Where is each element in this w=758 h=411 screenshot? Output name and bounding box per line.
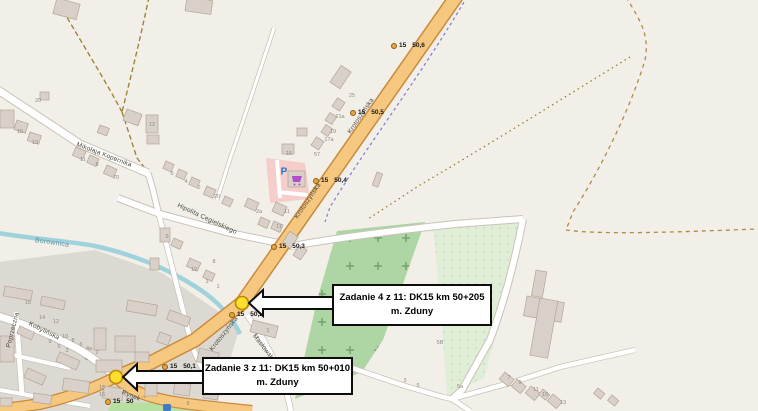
callout-arrow-4 xyxy=(249,290,333,316)
map-canvas[interactable]: Mikołaja KopernikaHipolita CegielskiegoK… xyxy=(0,0,758,411)
callout-task-4: Zadanie 4 z 11: DK15 km 50+205 m. Zduny xyxy=(332,284,492,326)
callout-task-4-line2: m. Zduny xyxy=(391,307,433,318)
task-marker-4 xyxy=(236,297,249,310)
callout-task-3-line1: Zadanie 3 z 11: DK15 km 50+010 xyxy=(205,364,350,375)
callout-task-3: Zadanie 3 z 11: DK15 km 50+010 m. Zduny xyxy=(202,357,353,395)
callout-task-3-line2: m. Zduny xyxy=(256,378,298,389)
callout-task-4-line1: Zadanie 4 z 11: DK15 km 50+205 xyxy=(340,293,485,304)
callout-arrow-3 xyxy=(123,364,203,390)
task-marker-3 xyxy=(110,371,123,384)
annotation-layer xyxy=(0,0,758,411)
